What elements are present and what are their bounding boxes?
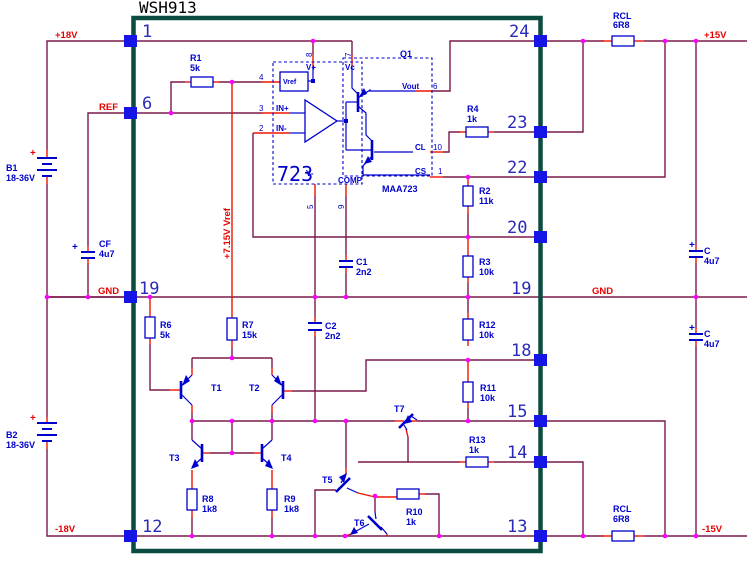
pin-square-20: [534, 231, 547, 243]
svg-text:4u7: 4u7: [704, 256, 720, 266]
pin-number-23: 23: [507, 113, 527, 133]
cf-plus-icon: +: [72, 242, 78, 253]
ic-label-vout: Vout: [402, 82, 420, 91]
svg-text:T4: T4: [281, 453, 292, 463]
c-top-plus-icon: +: [689, 240, 695, 251]
resistor-r3: R310k: [463, 256, 495, 277]
schematic-page: WSH913 Vref V+ Vc IN+ IN- V- COMP: [0, 0, 747, 567]
svg-text:R1: R1: [190, 53, 202, 63]
svg-text:4u7: 4u7: [704, 339, 720, 349]
resistor-r12: R1210k: [463, 319, 496, 340]
pin-number-12: 12: [142, 517, 162, 537]
svg-text:T6: T6: [354, 518, 365, 528]
wire-r1-left: [171, 82, 185, 113]
wire-cl-to-r4: [443, 132, 460, 152]
ic-pin-7: 7: [344, 52, 353, 57]
svg-text:11k: 11k: [479, 196, 495, 206]
svg-text:R10: R10: [406, 507, 423, 517]
svg-text:6R8: 6R8: [613, 514, 630, 524]
pin-square-19-left: [124, 291, 137, 303]
ic-label-vc: Vc: [345, 63, 355, 72]
resistor-rcl-top: RCL6R8: [612, 11, 634, 46]
resistor-r8: R81k8: [187, 489, 217, 514]
pin-number-20: 20: [507, 218, 527, 238]
ic-label-cl: CL: [415, 143, 426, 152]
svg-text:5k: 5k: [160, 330, 171, 340]
t1-arrow-icon: [182, 375, 190, 386]
wire-pin14-riser: [546, 462, 583, 536]
svg-text:2n2: 2n2: [325, 331, 341, 341]
ic-label-vplus: V+: [306, 63, 316, 72]
ic-pin-8: 8: [305, 52, 314, 57]
svg-text:R6: R6: [160, 320, 172, 330]
transistor-t6: T6: [350, 512, 387, 535]
svg-text:18-36V: 18-36V: [6, 440, 35, 450]
pin-number-13: 13: [507, 517, 527, 537]
vref-box-label: Vref: [283, 79, 297, 86]
wire-t2base-pin18: [292, 360, 534, 391]
capacitor-c-top: + C4u7: [689, 240, 720, 266]
pin-square-6: [124, 107, 137, 119]
svg-text:4u7: 4u7: [99, 249, 115, 259]
svg-text:RCL: RCL: [613, 504, 632, 514]
ic-pin-3: 3: [259, 104, 264, 113]
svg-text:R11: R11: [480, 383, 496, 393]
wire-t5-base-down: [315, 490, 336, 536]
resistor-r1: R15k: [190, 53, 213, 87]
transistor-t7: T7: [394, 404, 417, 430]
ic-q1-outline: [343, 58, 432, 176]
wire-pin23-riser: [546, 41, 583, 132]
pin-number-6: 6: [142, 94, 152, 114]
net-label-n15v: -15V: [702, 524, 723, 535]
pin-square-23: [534, 126, 547, 138]
ic-label-inp: IN+: [276, 104, 289, 113]
svg-text:T5: T5: [322, 475, 333, 485]
net-label-p18v: +18V: [55, 30, 78, 41]
capacitor-c2: C22n2: [308, 321, 341, 341]
transistor-t2: T2: [249, 375, 283, 405]
pin-square-14: [534, 456, 547, 468]
ic-pin-5: 5: [306, 204, 315, 209]
pin-number-1: 1: [142, 22, 152, 42]
t2-arrow-icon: [274, 375, 282, 386]
t4-arrow-icon: [265, 459, 273, 469]
battery-b2: + B2 18-36V: [6, 413, 57, 450]
svg-text:CF: CF: [99, 239, 111, 249]
t3-arrow-icon: [191, 459, 199, 469]
ic-pin-6: 6: [433, 82, 438, 91]
ic-part-number: MAA723: [382, 184, 418, 194]
ic-label-cs: CS: [415, 167, 427, 176]
net-label-vref-rail: +7.15V Vref: [222, 207, 233, 259]
ic-label-inn: IN-: [276, 124, 287, 133]
svg-text:R4: R4: [467, 104, 479, 114]
svg-text:1k: 1k: [469, 445, 480, 455]
batteries: + B1 18-36V + B2 18-36V: [6, 148, 57, 450]
b1-plus-icon: +: [30, 148, 36, 159]
wire-r6-to-t1: [150, 344, 170, 390]
pin-square-15: [534, 415, 547, 427]
pin-square-24: [534, 35, 547, 47]
ic-q1-label: Q1: [400, 49, 412, 59]
wire-ref-to-cf: [88, 113, 125, 246]
resistor-r10: R101k: [397, 489, 423, 527]
svg-text:R12: R12: [479, 320, 496, 330]
svg-text:5k: 5k: [190, 63, 201, 73]
pin-square-12: [124, 530, 137, 542]
pin-square-22: [534, 171, 547, 183]
net-label-ref: REF: [99, 102, 118, 113]
svg-text:10k: 10k: [480, 393, 496, 403]
svg-text:6R8: 6R8: [613, 20, 630, 30]
svg-text:T1: T1: [211, 383, 222, 393]
wire-vout-to-pin24: [433, 41, 534, 91]
svg-text:T7: T7: [394, 404, 405, 414]
svg-text:18-36V: 18-36V: [6, 173, 35, 183]
resistor-r9: R91k8: [267, 489, 299, 514]
net-label-n18v: -18V: [55, 524, 76, 535]
resistor-r13: R131k: [466, 435, 488, 467]
pin-number-14: 14: [507, 443, 527, 463]
svg-text:R9: R9: [284, 494, 296, 504]
svg-text:1k8: 1k8: [202, 504, 217, 514]
svg-text:R2: R2: [479, 186, 491, 196]
wire-r10-right: [425, 494, 439, 536]
resistor-r11: R1110k: [463, 382, 496, 403]
resistor-r2: R211k: [463, 186, 495, 206]
pin-number-24: 24: [509, 22, 529, 42]
pin-number-22: 22: [507, 158, 527, 178]
c-bot-plus-icon: +: [689, 323, 695, 334]
pin-number-19-left: 19: [139, 279, 159, 299]
svg-text:B1: B1: [6, 163, 18, 173]
ic-label-comp: COMP: [338, 176, 363, 185]
svg-text:C: C: [704, 246, 711, 256]
wire-p18-to-b1: [47, 41, 125, 150]
svg-text:10k: 10k: [479, 330, 495, 340]
ic-pin-4: 4: [259, 73, 264, 82]
transistor-t4: T4: [262, 440, 292, 469]
svg-text:R7: R7: [242, 320, 254, 330]
net-label-p15v: +15V: [704, 30, 727, 41]
b2-plus-icon: +: [30, 413, 36, 424]
module-title: WSH913: [139, 0, 197, 17]
ic-upper-arrow-icon: [359, 88, 367, 97]
svg-text:1k: 1k: [406, 517, 417, 527]
resistor-r7: R715k: [227, 318, 258, 340]
schematic-canvas: WSH913 Vref V+ Vc IN+ IN- V- COMP: [0, 0, 747, 567]
module-border: [134, 18, 541, 551]
transistor-t1: T1: [181, 375, 222, 405]
ic-723: Vref V+ Vc IN+ IN- V- COMP Vout CL CS 8 …: [259, 49, 443, 209]
wire-pin22-riser: [546, 41, 665, 177]
net-label-gnd-right: GND: [592, 286, 613, 297]
wire-pin15-riser: [546, 421, 665, 536]
capacitor-cf: + CF4u7: [72, 239, 115, 259]
opamp-triangle: [305, 100, 337, 142]
svg-text:R13: R13: [469, 435, 486, 445]
transistor-t3: T3: [169, 440, 202, 469]
svg-text:B2: B2: [6, 430, 18, 440]
ic-pin-10: 10: [433, 143, 442, 152]
pin-square-13: [534, 530, 547, 542]
svg-text:T2: T2: [249, 383, 260, 393]
svg-text:C: C: [704, 329, 711, 339]
ic-pin-9: 9: [337, 204, 346, 209]
svg-text:15k: 15k: [242, 330, 258, 340]
wire-b2-to-pin12: [47, 449, 125, 536]
svg-text:C1: C1: [356, 257, 368, 267]
svg-text:2n2: 2n2: [356, 267, 372, 277]
svg-text:R3: R3: [479, 257, 491, 267]
ic-name: 723: [277, 162, 313, 186]
resistor-rcl-bottom: RCL6R8: [612, 504, 634, 541]
capacitor-c1: C12n2: [339, 257, 372, 277]
ic-pin-2: 2: [259, 124, 264, 133]
svg-text:1k: 1k: [467, 114, 478, 124]
net-label-gnd-left: GND: [98, 286, 119, 297]
svg-text:T3: T3: [169, 453, 180, 463]
resistor-r6: R65k: [145, 317, 172, 340]
svg-text:R8: R8: [202, 494, 214, 504]
svg-text:C2: C2: [325, 321, 337, 331]
pin-number-19-right: 19: [511, 279, 531, 299]
pin-square-1: [124, 35, 137, 47]
svg-text:1k8: 1k8: [284, 504, 299, 514]
capacitor-c-bottom: + C4u7: [689, 323, 720, 349]
ic-pin-1: 1: [438, 167, 443, 176]
pin-number-18: 18: [511, 341, 531, 361]
svg-text:10k: 10k: [479, 267, 495, 277]
resistor-r4: R41k: [466, 104, 488, 137]
battery-b1: + B1 18-36V: [6, 148, 57, 183]
pin-number-15: 15: [507, 402, 527, 422]
pin-square-18: [534, 354, 547, 366]
